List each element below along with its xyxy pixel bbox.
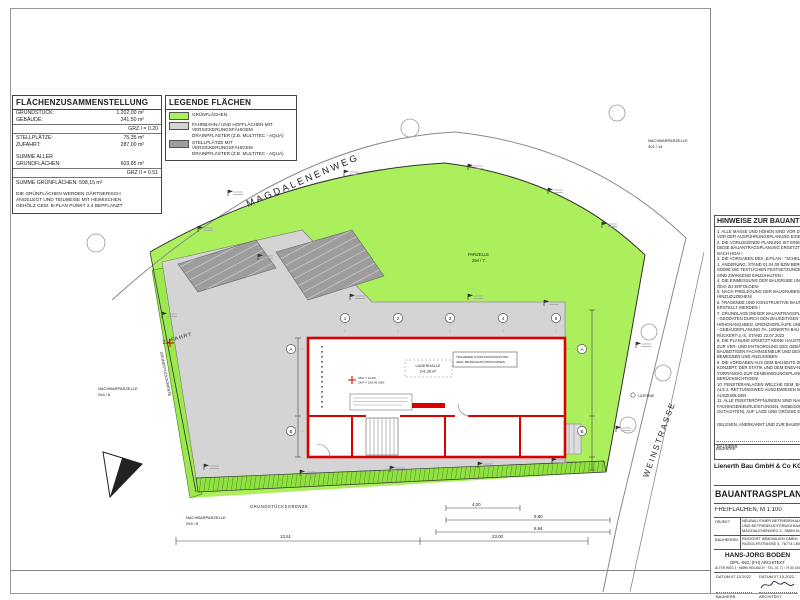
nachbarparzelle-topright-number: 301 / 14 [648,144,663,149]
laterne-label: LATERNE [638,394,655,398]
legend-item-gruenflaechen: GRÜNFLÄCHEN [166,110,296,120]
hall-label: LAGERHALLE [416,364,441,368]
lamp-icon [631,393,635,397]
svg-text:9,80: 9,80 [534,514,543,519]
bauherrin-row: BAUHERRIN RÜCKERT IMMOBILIEN GMBH, RURUD… [714,535,800,550]
stair [366,418,398,455]
architect-address: ALTER WEG 3 · 66996 HEILBACH · TEL. 01 7… [714,566,800,570]
area-summary-box: FLÄCHENZUSAMMENSTELLUNG GRUNDSTÜCK:1.202… [12,95,162,214]
nachbarparzelle-left-label: NACHBARPARZELLE [98,386,138,391]
steel-note-line1: TRAGENDE STAHLKONSTRUKTION [456,355,508,359]
titleblock-bauherr-label: BAUHERR [716,446,736,451]
objekt-row: OBJEKT NEUBAU EINER BETRIEBSHALLEUND BET… [714,517,800,536]
svg-text:13,61: 13,61 [280,534,292,539]
svg-text:B: B [580,429,583,434]
notes-lines: 1. ALLE MASSE UND HÖHEN SIND VOR DER AUS… [715,227,800,414]
parzelle-number: 294 / 7 [472,258,485,263]
legend-swatch-green [169,112,189,120]
titleblock-subtitle: FREIFLÄCHEN, M 1:100 [715,507,782,513]
svg-text:2: 2 [397,316,400,321]
nachbarparzelle-topright-label: NACHBARPARZELLE [648,138,688,143]
svg-text:23,00: 23,00 [492,534,504,539]
nachbarparzelle-bottom-number: 294 / 8 [186,521,199,526]
sign-architekt-label: ARCHITEKT [759,592,797,599]
nachbarparzelle-left-number: 294 / 8 [98,392,111,397]
micro-note-box [350,394,412,410]
notes-gelesen: GELESEN, ANERKANNT UND ZUR BAUEINGABE AN [715,414,800,427]
titleblock-divider-1 [714,444,800,445]
north-arrow-icon [103,452,142,497]
sign-bauherr-label: BAUHERR [716,592,752,599]
area-row-zufahrt: ZUFAHRT:287,00 m² [13,142,161,149]
svg-text:B: B [289,429,292,434]
svg-text:8,94: 8,94 [534,526,543,531]
area-row-gebaeude: GEBÄUDE:241,50 m² [13,117,161,124]
area-row-gruen: SUMME GRÜNFLÄCHEN: 598,15 m² [13,178,161,187]
objekt-label: OBJEKT [714,518,741,536]
area-row-summe1: SUMME ALLER [13,149,161,161]
area-note-1: DIE GRÜNFLÄCHEN WERDEN GÄRTNERISCH [13,187,161,198]
titleblock-title: BAUANTRAGSPLANUNG [715,489,800,499]
site-plan: 1 2 3 4 5 A B A B [0,0,800,600]
signature [759,578,797,592]
okf-line2: OKF = 192,45 üNN [358,381,384,385]
street-label-weinstrasse: WEINSTRASSE [641,400,677,478]
area-summary-title: FLÄCHENZUSAMMENSTELLUNG [13,96,161,110]
area-grz1: GRZ I = 0.20 [13,124,161,134]
legend-item-fahrbahn: FAHRBAHN-/ UND HOFFLÄCHEN MITVERSICKERUN… [166,120,296,138]
notes-panel: HINWEISE ZUR BAUANTRAGSPLANUNG 1. ALLE M… [714,215,800,460]
company-name: Lienerth Bau GmbH & Co KG [714,463,800,470]
titleblock-divider-3 [714,503,800,504]
svg-text:4: 4 [502,316,505,321]
objekt-value: NEUBAU EINER BETRIEBSHALLEUND BETRIEBSLE… [741,518,800,536]
bauherrin-label: BAUHERRIN [714,536,741,549]
datum-left: DATUM 07.10.2022 [716,574,751,579]
area-row-summe2: GRUNDFLÄCHEN:603,85 m² [13,161,161,168]
area-row-grundstueck: GRUNDSTÜCK:1.202,00 m² [13,110,161,117]
architect-name: HANS-JÖRG BODEN [714,552,800,559]
legend-title: LEGENDE FLÄCHEN [166,96,296,110]
grenze-bottom-label: GRUNDSTÜCKSGRENZE [250,504,308,509]
dimension-labels: 13,61 23,00 4,00 9,80 8,94 [280,502,543,539]
area-row-stellplaetze: STELLPLÄTZE:75,35 m² [13,134,161,142]
area-grz2: GRZ II = 0.51 [13,168,161,178]
legend-swatch-lightgray [169,122,189,130]
bauherrin-value: RÜCKERT IMMOBILIEN GMBH, RURUDOLFSTRASSE… [741,536,800,549]
hall-area-label: 191,28 m² [419,370,437,374]
svg-text:3: 3 [449,316,452,321]
steel-note-line2: GEM. BRANDSCHUTZNACHWEIS [456,360,505,364]
title-column: HINWEISE ZUR BAUANTRAGSPLANUNG 1. ALLE M… [710,8,800,593]
building [308,338,581,457]
legend-swatch-darkgray [169,140,189,148]
parzelle-label: PARZELLE [468,252,489,257]
plan-frame-bottom [10,570,710,571]
notes-title: HINWEISE ZUR BAUANTRAGSPLANUNG [715,216,800,227]
nachbarparzelle-bottom-label: NACHBARPARZELLE [186,515,226,520]
titleblock-divider-2 [714,485,800,486]
legend-item-stellplaetze: STELLPLÄTZE MITVERSICKERUNGSFÄHIGEMDRAIN… [166,138,296,159]
titleblock-divider-4 [714,572,800,573]
svg-text:4,00: 4,00 [472,502,481,507]
architect-title: DIPL.-ING. (FH) ARCHITEKT [714,560,800,565]
legend-box: LEGENDE FLÄCHEN GRÜNFLÄCHEN FAHRBAHN-/ U… [165,95,297,161]
area-note-3: GEHÖLZ GEM. B-PLAN PUNKT 2.4 BEPFLANZT [13,204,161,213]
svg-text:1: 1 [344,316,347,321]
drawing-sheet: 1 2 3 4 5 A B A B [0,0,800,600]
okf-line1: OKF = ±0,00 [358,376,376,380]
svg-text:5: 5 [555,316,558,321]
